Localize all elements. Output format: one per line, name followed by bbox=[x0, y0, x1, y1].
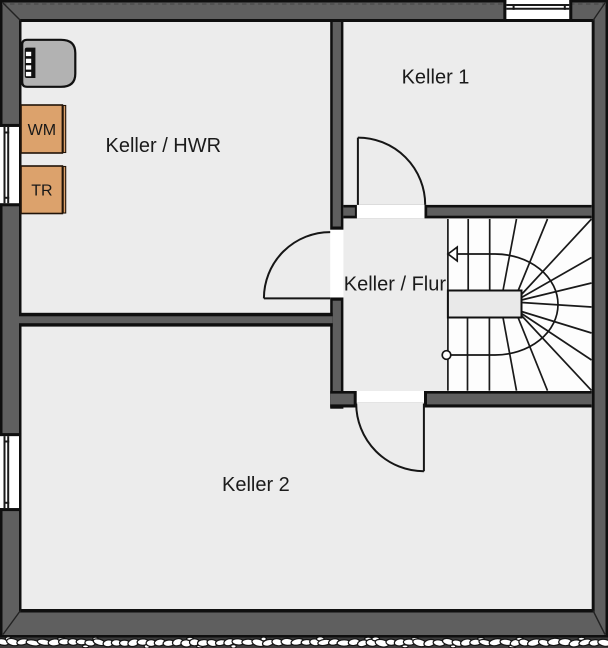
svg-text:WM: WM bbox=[28, 122, 56, 139]
svg-text:TR: TR bbox=[31, 183, 52, 200]
svg-text:Keller 1: Keller 1 bbox=[402, 67, 470, 89]
svg-text:Keller / Flur: Keller / Flur bbox=[344, 273, 447, 295]
svg-text:Keller / HWR: Keller / HWR bbox=[106, 135, 222, 157]
svg-text:Keller 2: Keller 2 bbox=[222, 474, 290, 496]
